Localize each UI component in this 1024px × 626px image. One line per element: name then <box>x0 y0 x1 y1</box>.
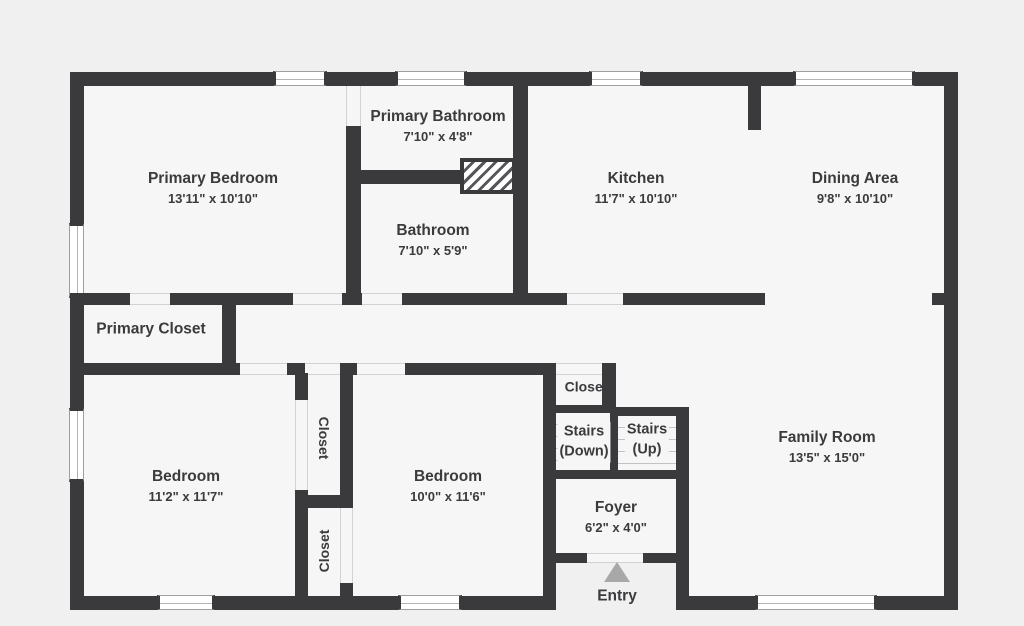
wall <box>467 72 589 86</box>
window <box>398 595 462 610</box>
wall <box>342 293 362 305</box>
wall <box>405 363 543 375</box>
stairs-line1: Stairs <box>559 422 608 442</box>
window <box>157 595 215 610</box>
room-label-primary-bedroom: Primary Bedroom 13'11" x 10'10" <box>148 169 278 207</box>
wall <box>643 72 793 86</box>
wall <box>623 293 765 305</box>
window <box>69 408 84 482</box>
wall <box>402 293 567 305</box>
room-label-closet-bottom: Closet <box>316 530 332 573</box>
wall <box>222 305 236 363</box>
stairs-line2: (Up) <box>627 440 667 460</box>
room-name: Bathroom <box>396 221 469 242</box>
wall <box>215 596 398 610</box>
room-name: Bedroom <box>410 467 486 488</box>
tub-hatch <box>460 158 516 194</box>
wall <box>70 293 130 305</box>
room-dims: 7'10" x 5'9" <box>396 242 469 260</box>
wall <box>513 86 528 305</box>
wall <box>944 86 958 596</box>
door-opening <box>357 363 405 375</box>
room-dims: 6'2" x 4'0" <box>585 519 647 537</box>
window <box>755 595 877 610</box>
door-opening <box>556 363 602 375</box>
door-opening <box>293 293 342 305</box>
room-dims: 11'2" x 11'7" <box>149 488 224 506</box>
wall <box>748 86 761 130</box>
door-opening <box>240 363 287 375</box>
window <box>793 71 915 86</box>
room-dims: 10'0" x 11'6" <box>410 488 486 506</box>
door-opening <box>346 86 361 126</box>
room-name: Entry <box>597 587 637 608</box>
room-name: Closet <box>565 378 608 397</box>
room-name: Dining Area <box>812 169 898 190</box>
room-label-bathroom: Bathroom 7'10" x 5'9" <box>396 221 469 259</box>
room-name: Primary Bathroom <box>370 107 505 128</box>
room-label-primary-bathroom: Primary Bathroom 7'10" x 4'8" <box>370 107 505 145</box>
door-opening <box>362 293 402 305</box>
room-label-kitchen: Kitchen 11'7" x 10'10" <box>595 169 678 207</box>
room-dims: 11'7" x 10'10" <box>595 190 678 208</box>
stairs-line1: Stairs <box>627 420 667 440</box>
wall <box>932 293 944 305</box>
wall <box>676 407 689 610</box>
wall <box>70 596 157 610</box>
stairs-up-label: Stairs (Up) <box>625 420 669 461</box>
room-name: Primary Closet <box>96 320 205 341</box>
wall <box>340 583 353 596</box>
room-dims: 9'8" x 10'10" <box>812 190 898 208</box>
room-name: Bedroom <box>149 467 224 488</box>
room-label-dining-area: Dining Area 9'8" x 10'10" <box>812 169 898 207</box>
wall <box>295 495 353 508</box>
wall <box>877 596 958 610</box>
room-dims: 7'10" x 4'8" <box>370 128 505 146</box>
room-name: Family Room <box>778 428 875 449</box>
room-name: Primary Bedroom <box>148 169 278 190</box>
window <box>69 223 84 298</box>
wall <box>70 363 240 375</box>
wall <box>70 86 84 223</box>
wall <box>70 72 273 86</box>
door-opening <box>130 293 170 305</box>
room-label-bedroom-left: Bedroom 11'2" x 11'7" <box>149 467 224 505</box>
window <box>273 71 327 86</box>
room-label-foyer: Foyer 6'2" x 4'0" <box>585 498 647 536</box>
wall <box>462 596 556 610</box>
window <box>395 71 467 86</box>
window <box>589 71 643 86</box>
wall <box>70 298 84 408</box>
wall <box>556 405 616 413</box>
wall <box>556 470 689 479</box>
room-label-bedroom-right: Bedroom 10'0" x 11'6" <box>410 467 486 505</box>
wall <box>295 373 308 400</box>
floor-plan: Primary Bedroom 13'11" x 10'10" Primary … <box>0 0 1024 626</box>
wall <box>327 72 395 86</box>
door-opening <box>340 508 353 583</box>
wall <box>915 72 958 86</box>
stairs-line2: (Down) <box>559 442 608 462</box>
door-opening <box>305 363 340 375</box>
room-label-closet-top: Closet <box>316 417 332 460</box>
wall <box>543 553 587 563</box>
room-name: Kitchen <box>595 169 678 190</box>
wall <box>346 126 361 305</box>
room-label-family-room: Family Room 13'5" x 15'0" <box>778 428 875 466</box>
entry-arrow-icon <box>604 562 630 582</box>
wall <box>346 170 460 184</box>
room-label-primary-closet: Primary Closet <box>96 320 205 341</box>
room-dims: 13'5" x 15'0" <box>778 449 875 467</box>
door-opening <box>567 293 623 305</box>
stairs-down-label: Stairs (Down) <box>557 422 610 463</box>
wall <box>170 293 293 305</box>
entry-label: Entry <box>597 587 637 608</box>
wall <box>643 553 676 563</box>
wall <box>610 413 618 470</box>
room-name: Foyer <box>585 498 647 519</box>
door-opening <box>295 400 308 490</box>
room-dims: 13'11" x 10'10" <box>148 190 278 208</box>
wall <box>70 482 84 596</box>
room-label-hall-closet: Closet <box>565 378 608 397</box>
wall <box>340 373 353 508</box>
